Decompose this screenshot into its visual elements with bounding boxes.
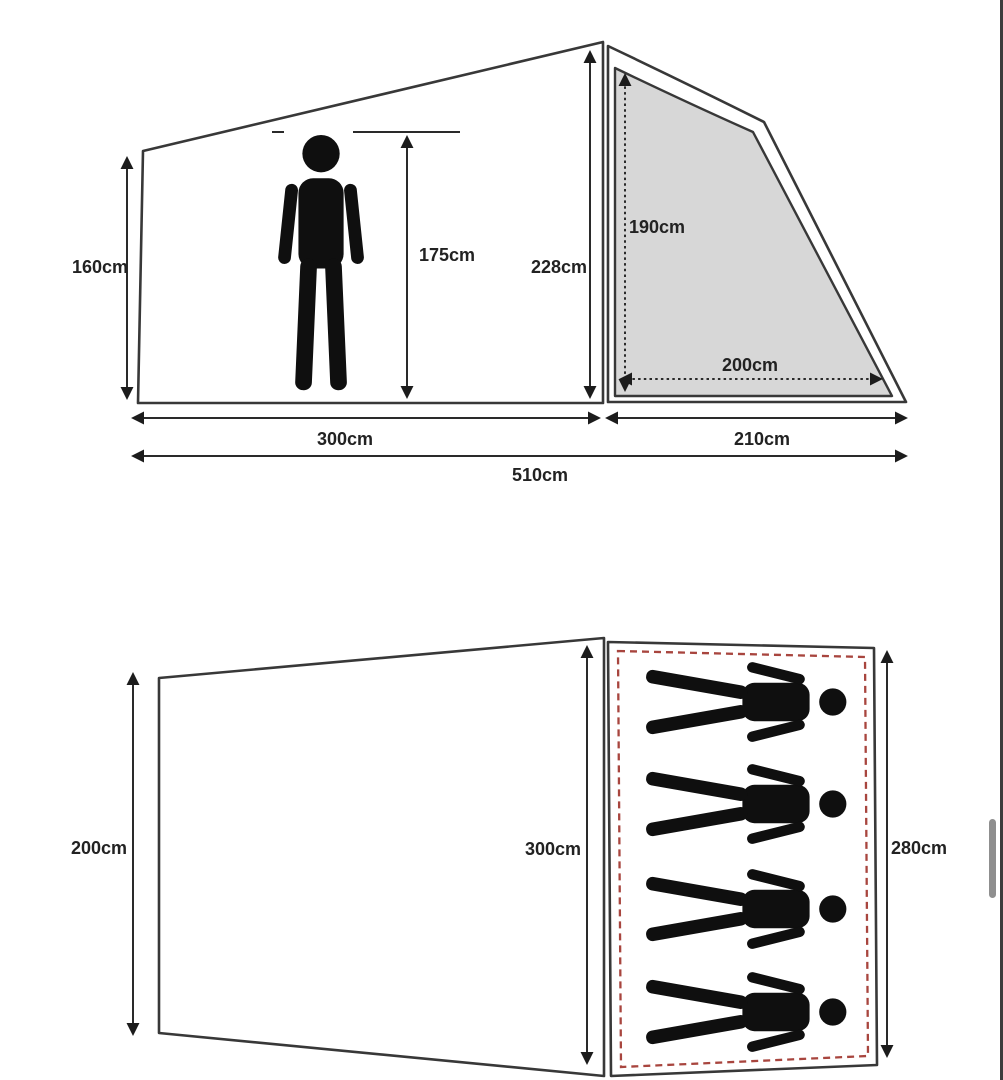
tent-dimension-diagram-page: 160cm 175cm 228cm 190cm 200cm 300cm 210c… bbox=[0, 0, 1003, 1080]
diagram-svg: 160cm 175cm 228cm 190cm 200cm 300cm 210c… bbox=[0, 0, 1003, 1080]
label-peak-height: 228cm bbox=[531, 257, 587, 277]
tent-front-section-outline bbox=[138, 42, 603, 403]
floor-view-diagram: 200cm 300cm 280cm bbox=[71, 638, 947, 1076]
label-front-length: 300cm bbox=[317, 429, 373, 449]
label-rear-inner-width: 200cm bbox=[722, 355, 778, 375]
vertical-scrollbar-thumb[interactable] bbox=[989, 819, 996, 898]
label-left-wall-height: 160cm bbox=[72, 257, 128, 277]
label-outer-width: 200cm bbox=[71, 838, 127, 858]
label-rear-length: 210cm bbox=[734, 429, 790, 449]
label-rear-inner-height: 190cm bbox=[629, 217, 685, 237]
side-view-diagram: 160cm 175cm 228cm 190cm 200cm 300cm 210c… bbox=[72, 42, 906, 485]
label-inner-width: 280cm bbox=[891, 838, 947, 858]
label-total-length: 510cm bbox=[512, 465, 568, 485]
label-person-height: 175cm bbox=[419, 245, 475, 265]
label-inner-length: 300cm bbox=[525, 839, 581, 859]
